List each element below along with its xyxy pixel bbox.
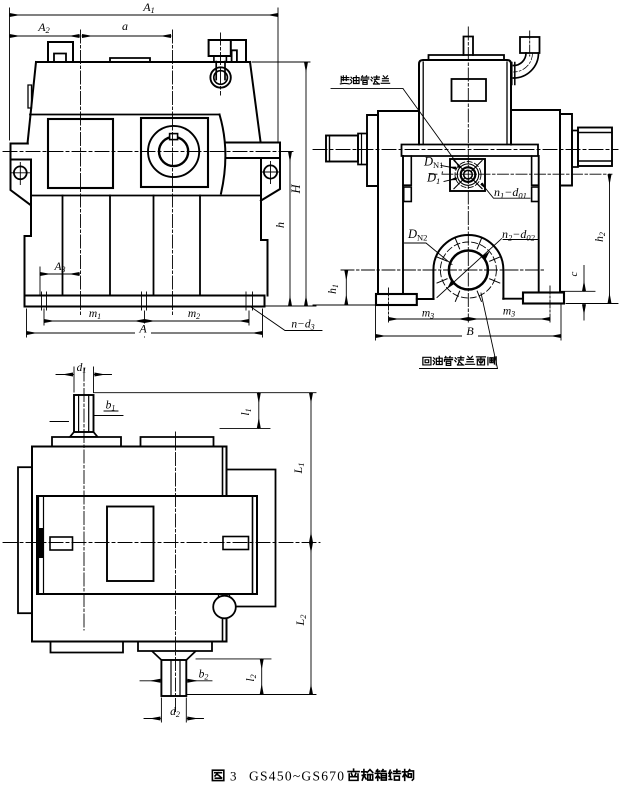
svg-text:d1: d1 (77, 362, 87, 375)
svg-text:l1: l1 (240, 408, 253, 415)
svg-text:m1: m1 (89, 308, 101, 321)
svg-text:GS450~GS670: GS450~GS670 (249, 769, 344, 784)
svg-text:h1: h1 (327, 284, 340, 294)
svg-text:L2: L2 (293, 614, 308, 627)
svg-text:A3: A3 (53, 261, 65, 274)
svg-text:m3: m3 (422, 308, 434, 321)
svg-text:DN2: DN2 (407, 227, 427, 243)
svg-text:n−d3: n−d3 (291, 319, 314, 332)
svg-text:l2: l2 (245, 674, 258, 681)
svg-text:c: c (568, 271, 580, 276)
svg-text:A2: A2 (37, 20, 50, 35)
svg-text:a: a (122, 19, 128, 33)
svg-text:D1′: D1′ (426, 169, 443, 186)
svg-text:A: A (138, 322, 147, 336)
svg-text:m3: m3 (503, 306, 515, 319)
svg-text:B: B (466, 324, 474, 338)
svg-text:m2: m2 (188, 308, 200, 321)
svg-text:n2−d02: n2−d02 (502, 227, 536, 243)
svg-text:b2: b2 (199, 669, 209, 682)
svg-text:A1: A1 (142, 0, 155, 15)
svg-text:h: h (273, 222, 287, 228)
svg-text:3: 3 (230, 769, 237, 784)
svg-text:L1: L1 (291, 463, 306, 475)
svg-text:h2: h2 (594, 232, 607, 242)
svg-text:d2: d2 (170, 706, 180, 719)
svg-text:H: H (289, 184, 303, 195)
